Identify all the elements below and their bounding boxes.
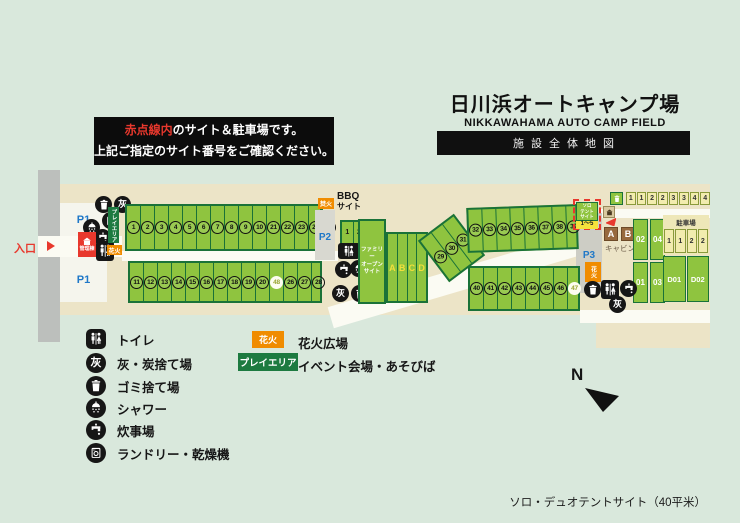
- site-cell: 22: [280, 206, 294, 249]
- legend-item-trash: ゴミ捨て場: [86, 376, 180, 396]
- page-title-en: NIKKAWAHAMA AUTO CAMP FIELD: [425, 117, 705, 129]
- mini-sign: [610, 192, 623, 205]
- notice-highlight: 赤点線内: [125, 123, 173, 137]
- legend-item-faucet: 炊事場: [86, 420, 155, 440]
- notice-line-2: 上記ご指定のサイト番号をご確認ください。: [94, 141, 334, 162]
- site-cell: 27: [297, 263, 311, 301]
- site-cell: 17: [213, 263, 227, 301]
- parking-lot-label: 駐車場: [663, 217, 709, 227]
- cabin-units: AB: [604, 227, 635, 241]
- title-block: 日川浜オートキャンプ場 NIKKAWAHAMA AUTO CAMP FIELD: [425, 88, 705, 129]
- middle-road: [122, 251, 338, 261]
- parking-cell: 3: [679, 192, 689, 205]
- site-cell: 8: [224, 206, 238, 249]
- family-site-label: オープン: [361, 262, 383, 269]
- site-cell: 2: [140, 206, 154, 249]
- parking-p1-lower: P1: [60, 257, 107, 302]
- solo-tent-labels: ソロテントサイト: [576, 202, 598, 221]
- site-row-right-bottom: 4041424344454647: [468, 266, 580, 311]
- trash-icon: [584, 281, 601, 298]
- site-cell: 34: [495, 208, 510, 249]
- site-cell: 23: [294, 206, 308, 249]
- site-cell: 42: [497, 268, 511, 309]
- parking-lot-cells: 1122: [664, 229, 708, 253]
- fireworks-label-right: 花火: [585, 262, 601, 282]
- site-row-right-top: 3233343536373839: [466, 204, 579, 253]
- site-cell: 46: [553, 268, 567, 309]
- cabin-parking-cells: 02040103: [633, 219, 665, 303]
- site-cell: 18: [227, 263, 241, 301]
- site-cell: 1: [127, 206, 140, 249]
- site-cell: 47: [567, 268, 581, 309]
- p3-label: P3: [583, 250, 595, 261]
- p2-label: P2: [319, 232, 331, 243]
- site-cell: 3: [154, 206, 168, 249]
- marker-arrow-icon: [606, 216, 616, 226]
- legend-play-area-badge: プレイエリア: [238, 353, 298, 371]
- parking-cell: 2: [647, 192, 657, 205]
- site-cell: 21: [266, 206, 280, 249]
- compass-label: N: [571, 365, 583, 385]
- entrance-label: 入口: [14, 240, 36, 256]
- site-cell: 9: [238, 206, 252, 249]
- site-cell: 19: [241, 263, 255, 301]
- site-cell: 16: [199, 263, 213, 301]
- notice-line-1: 赤点線内のサイト＆駐車場です。: [94, 120, 334, 141]
- faucet-icon: [620, 280, 637, 297]
- ash-icon: 灰: [609, 296, 626, 313]
- parking-d-cell: D01: [663, 256, 686, 302]
- bbq-title: BBQ サイト: [337, 192, 381, 211]
- trash-icon: [613, 195, 621, 203]
- site-cell: 14: [171, 263, 185, 301]
- toilet-icon: [338, 243, 360, 259]
- bonfire-label: 焚火: [318, 198, 334, 209]
- legend-fireworks-badge: 花火: [252, 331, 284, 348]
- site-cell: 44: [525, 268, 539, 309]
- footer-note: ソロ・デュオテントサイト（40平米）: [380, 494, 706, 510]
- toilet-icon: [86, 329, 106, 349]
- family-cell: C: [407, 234, 417, 301]
- site-cell: 36: [523, 207, 538, 248]
- bbq-cell: 1: [342, 222, 353, 243]
- trash-icon: [86, 376, 106, 396]
- site-cell: 4: [168, 206, 182, 249]
- family-cell: A: [388, 234, 397, 301]
- site-cell: 43: [511, 268, 525, 309]
- solo-tent-site-box: ソロテントサイト 1〜5: [573, 199, 601, 230]
- cabin-parking-cell: 02: [633, 219, 648, 260]
- campground-map-page: 赤点線内のサイト＆駐車場です。 上記ご指定のサイト番号をご確認ください。 日川浜…: [0, 0, 740, 523]
- site-cell: 13: [157, 263, 171, 301]
- family-open-site: ファミリーオープンサイト: [358, 219, 386, 304]
- family-site-label: ファミリー: [360, 247, 384, 261]
- legend-item-toilet: トイレ: [86, 329, 155, 349]
- laundry-icon: [86, 443, 106, 463]
- site-cell: 41: [483, 268, 497, 309]
- site-cell: 35: [509, 208, 524, 249]
- notice-box: 赤点線内のサイト＆駐車場です。 上記ご指定のサイト番号をご確認ください。: [94, 117, 334, 165]
- site-cell: 5: [182, 206, 196, 249]
- faucet-icon: [86, 420, 106, 440]
- page-title: 日川浜オートキャンプ場: [425, 88, 705, 117]
- ash-icon: 灰: [86, 353, 106, 373]
- family-cell: B: [397, 234, 407, 301]
- parking-cell: 3: [669, 192, 679, 205]
- parking-cell: 1: [626, 192, 636, 205]
- legend-item-ash: 灰 灰・炭捨て場: [86, 353, 192, 373]
- site-cell: 28: [311, 263, 325, 301]
- legend-item-laundry: ランドリー・乾燥機: [86, 443, 230, 463]
- parking-cell: 1: [637, 192, 647, 205]
- solo-tent-range: 1〜5: [576, 221, 598, 229]
- site-cell: 26: [283, 263, 297, 301]
- ash-icon: 灰: [332, 285, 349, 302]
- site-cell: 38: [551, 206, 566, 247]
- family-site-label: サイト: [364, 269, 381, 276]
- site-cell: 37: [537, 207, 552, 248]
- parking-cell: 1: [664, 229, 674, 253]
- top-parking-cells: 11223344: [626, 192, 710, 205]
- parking-cell: 2: [687, 229, 697, 253]
- site-cell: 11: [130, 263, 143, 301]
- management-building: 管理棟: [78, 232, 96, 257]
- site-row-bottom: 1112131415161718192048262728: [128, 261, 322, 303]
- site-cell: 33: [481, 209, 496, 250]
- parking-cell: 4: [690, 192, 700, 205]
- parking-d-cell: D02: [687, 256, 710, 302]
- legend-item-shower: シャワー: [86, 398, 167, 418]
- entrance-arrow-icon: [47, 241, 55, 251]
- site-cell: 7: [210, 206, 224, 249]
- cabin-unit: A: [604, 227, 618, 241]
- site-cell: 48: [269, 263, 283, 301]
- map-banner: 施設全体地図: [437, 131, 690, 155]
- site-cell: 6: [196, 206, 210, 249]
- site-cell: 45: [539, 268, 553, 309]
- parking-cell: 2: [698, 229, 708, 253]
- right-bottom-road: [580, 310, 710, 323]
- fireworks-label-left: 花火: [107, 245, 122, 255]
- parking-cell: 1: [675, 229, 685, 253]
- parking-lot-area: 駐車場 1122: [663, 215, 709, 255]
- site-cell: 12: [143, 263, 157, 301]
- play-area-label: プレイエリア: [108, 207, 119, 243]
- site-cell: 20: [255, 263, 269, 301]
- legend-play-area-label: イベント会場・あそびば: [298, 356, 436, 375]
- legend-fireworks-label: 花火広場: [298, 333, 348, 352]
- shower-icon: [86, 398, 106, 418]
- compass-arrow-icon: [583, 383, 621, 413]
- site-cell: 15: [185, 263, 199, 301]
- parking-cell: 2: [658, 192, 668, 205]
- site-row-top: 123456789102122232425: [125, 204, 322, 251]
- parking-d-cells: D01D02: [663, 256, 709, 302]
- management-building-icon: [82, 237, 92, 246]
- site-cell: 40: [470, 268, 483, 309]
- p2-area: P2: [315, 210, 335, 260]
- parking-cell: 4: [700, 192, 710, 205]
- site-cell: 10: [252, 206, 266, 249]
